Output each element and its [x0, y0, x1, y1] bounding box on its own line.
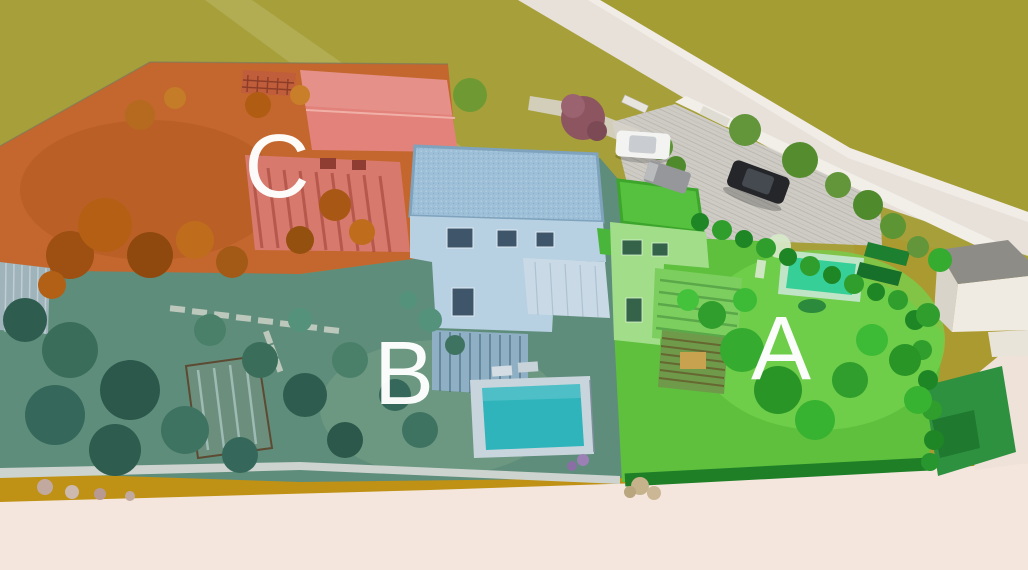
zone-b-label: B — [374, 324, 434, 424]
pool-b-lounger-1 — [492, 365, 513, 376]
zone-a-label: A — [751, 299, 811, 399]
pool-b-lounger-2 — [518, 361, 539, 372]
house-c-window — [320, 158, 336, 169]
scene-canvas: C B A — [0, 0, 1028, 570]
house-a-patio-table — [680, 352, 706, 369]
house-b-window-2 — [497, 230, 517, 247]
white-car — [615, 130, 671, 165]
site-plan-render: C B A — [0, 0, 1028, 570]
zone-c-label: C — [245, 117, 310, 217]
house-b-roof-gravel — [410, 146, 603, 222]
house-a-door — [626, 298, 642, 322]
neighbor-building-wall — [952, 276, 1028, 332]
house-b-window-1 — [447, 228, 473, 248]
white-car-glass — [628, 135, 656, 154]
house-a-window-1 — [622, 240, 642, 255]
house-b-door — [452, 288, 474, 316]
neighbor-building-annex — [988, 330, 1028, 357]
house-a-window-2 — [652, 243, 668, 256]
house-c-window-2 — [352, 160, 366, 170]
house-b-window-3 — [536, 232, 554, 247]
